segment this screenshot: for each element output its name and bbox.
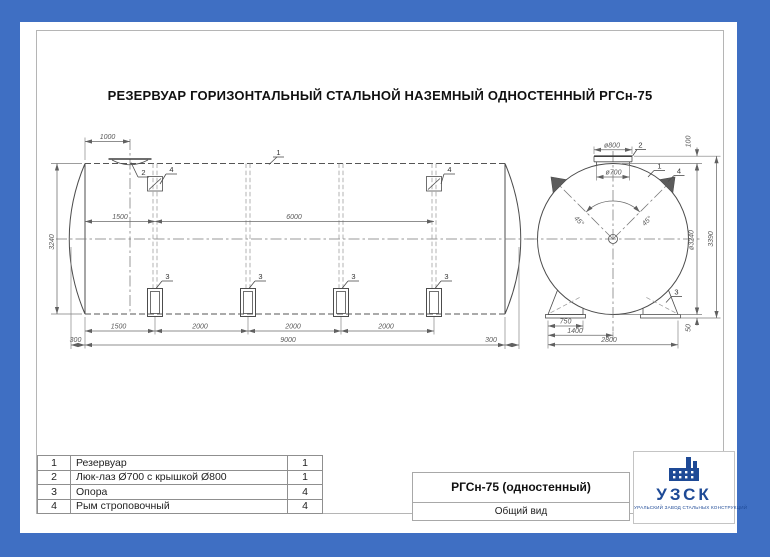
callout-number: 4 — [677, 167, 681, 176]
end-view: 45° 45° 2 — [527, 136, 721, 349]
callout-number: 3 — [674, 288, 678, 297]
drawing-sheet-screenshot: { "doc_title": "РЕЗЕРВУАР ГОРИЗОНТАЛЬНЫЙ… — [0, 0, 770, 557]
dim-lug-angle: 45° — [572, 215, 585, 228]
dim-support-span: 2800 — [600, 337, 617, 344]
dim-cover-diameter: ø800 — [604, 142, 620, 149]
dim-cone-length: 300 — [70, 337, 82, 344]
callout-lug-end: 4 — [668, 167, 685, 182]
dim-cover-height: 100 — [686, 136, 693, 148]
dim-shell-diameter: ø3240 — [689, 230, 696, 250]
dim-support-offset: 1400 — [567, 328, 583, 335]
dim-support-height: 50 — [686, 324, 693, 332]
callout-number: 3 — [351, 272, 355, 281]
callout-lug: 4 4 — [160, 165, 455, 184]
callout-number: 2 — [638, 141, 642, 150]
dim-support-width: 750 — [560, 319, 572, 326]
callout-number: 4 — [447, 165, 451, 174]
dim-bottom-span: 1500 — [111, 324, 127, 331]
saddle-supports-side — [148, 289, 442, 317]
dim-left-span: 1500 — [112, 214, 128, 221]
dim-total-height: 3390 — [708, 231, 715, 247]
dim-lug-span: 6000 — [286, 214, 302, 221]
side-view: 1 2 4 4 3 3 3 3 1000 1500 — [49, 134, 534, 349]
dim-total-length: 9000 — [280, 337, 296, 344]
dim-cone-length: 300 — [485, 337, 497, 344]
callout-number: 1 — [276, 148, 280, 157]
dim-shell-height: 3240 — [49, 234, 56, 250]
callout-number: 3 — [165, 272, 169, 281]
callout-tank: 1 — [269, 148, 284, 165]
callout-support: 3 3 3 3 — [156, 272, 452, 289]
callout-number: 1 — [657, 162, 661, 171]
tank-outline — [56, 139, 534, 314]
dim-lug-angle: 45° — [641, 214, 654, 227]
dim-manhole-offset: 1000 — [100, 134, 116, 141]
support-plane-lines — [153, 164, 436, 290]
callout-number: 2 — [141, 168, 145, 177]
dim-neck-diameter: ø700 — [606, 170, 622, 177]
callout-number: 3 — [258, 272, 262, 281]
dim-bottom-span: 2000 — [284, 324, 301, 331]
dim-bottom-span: 2000 — [377, 324, 394, 331]
dimensions-end: ø800 ø700 750 1400 2800 100 ø3240 — [548, 136, 721, 349]
technical-drawing: 1 2 4 4 3 3 3 3 1000 1500 — [0, 0, 770, 557]
callout-number: 3 — [444, 272, 448, 281]
lifting-lug-side — [148, 177, 442, 192]
callout-number: 4 — [169, 165, 173, 174]
callout-manhole-end: 2 — [633, 141, 647, 157]
dim-bottom-span: 2000 — [191, 324, 208, 331]
